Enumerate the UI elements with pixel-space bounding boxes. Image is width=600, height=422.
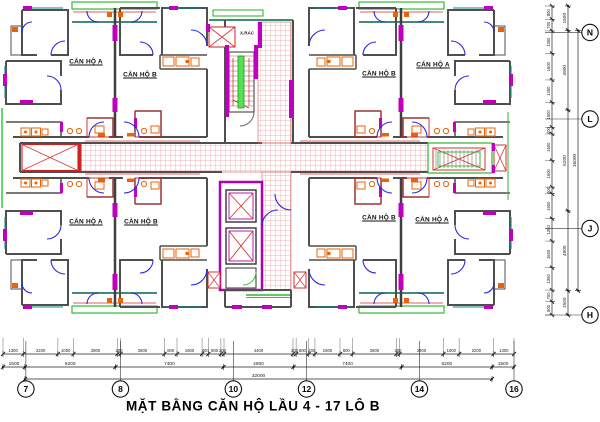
stair-rail <box>238 56 244 108</box>
dimension-value: 6200 <box>65 361 76 367</box>
grid-bubble-label: 10 <box>229 384 239 394</box>
dimension-value: 800 <box>343 348 351 353</box>
dimension-value: 1500 <box>562 13 568 24</box>
apartments-bottom-right <box>309 178 513 313</box>
dimension-value: 800 <box>167 348 175 353</box>
dimension-value: 800 <box>211 348 219 353</box>
dimension-value: 800 <box>546 304 551 312</box>
apartments-bottom-left <box>3 178 207 313</box>
dimension-value: 6200 <box>562 155 568 166</box>
lift-lobby-hatch <box>258 22 291 143</box>
dimension-value: 400 <box>546 186 551 194</box>
dimension-value: 1600 <box>546 142 551 152</box>
dimension-value: 1500 <box>546 109 551 119</box>
dimension-value: 1000 <box>447 348 457 353</box>
dimension-value: 4400 <box>254 348 264 353</box>
dimension-value: 4900 <box>562 245 568 256</box>
dimension-value: 800 <box>546 8 551 16</box>
dimension-value: 200 <box>291 348 299 353</box>
dimension-value: 800 <box>299 348 307 353</box>
dimension-value: 1500 <box>546 201 551 211</box>
dimension-value: 700 <box>546 292 551 300</box>
dimension-value: 400 <box>546 126 551 134</box>
dimension-value: 200 <box>115 348 123 353</box>
stair-right <box>428 112 508 200</box>
dimension-value: 1350 <box>546 37 551 47</box>
dimension-value: 16000 <box>572 154 578 168</box>
dimension-value: 2800 <box>91 348 101 353</box>
grid-bubble-label: H <box>587 310 593 320</box>
grid-bubble-label: 7 <box>24 384 29 394</box>
dimension-value: 1300 <box>9 348 19 353</box>
dimensions-right: 8007001350160013501500400160016004001500… <box>545 4 581 317</box>
dimension-value: 1500 <box>562 297 568 308</box>
dimension-value: 700 <box>546 21 551 29</box>
apartments-top-right <box>309 2 513 137</box>
grid-bubble-label: 14 <box>415 384 425 394</box>
dimension-value: 32000 <box>252 373 266 379</box>
dimension-value: 2800 <box>138 348 148 353</box>
grid-bubble-label: N <box>587 27 593 37</box>
dimension-value: 1600 <box>546 249 551 259</box>
dimension-value: 4900 <box>562 65 568 76</box>
dimension-value: 7400 <box>164 361 175 367</box>
floor-plan-svg: 1300220010002800200280080016004008002004… <box>0 0 600 422</box>
dimension-value: 2200 <box>472 348 482 353</box>
grid-bubble-label: 16 <box>509 384 519 394</box>
dimension-value: 7400 <box>342 361 353 367</box>
dimension-value: 1500 <box>9 361 20 367</box>
dimension-value: 1600 <box>185 348 195 353</box>
dimension-value: 400 <box>202 348 210 353</box>
dimension-value: 200 <box>395 348 403 353</box>
dimension-value: 2800 <box>370 348 380 353</box>
dimension-value: 1350 <box>546 86 551 96</box>
dimension-value: 1350 <box>546 274 551 284</box>
floor-plan-canvas: 1300220010002800200280080016004008002004… <box>0 0 600 422</box>
grid-bubble-label: L <box>587 114 592 124</box>
stair-core-top <box>206 10 293 143</box>
dimension-value: 1500 <box>498 361 509 367</box>
dimension-value: 1600 <box>323 348 333 353</box>
corridor <box>20 141 428 174</box>
dimension-value: 1300 <box>499 348 509 353</box>
dimension-value: 4800 <box>253 361 264 367</box>
dimension-value: 1600 <box>546 168 551 178</box>
dimension-value: 200 <box>219 348 227 353</box>
dimension-value: 6200 <box>442 361 453 367</box>
dimension-value: 2200 <box>36 348 46 353</box>
grid-bubble-label: 12 <box>302 384 312 394</box>
dimension-value: 400 <box>308 348 316 353</box>
grid-bubbles-right: NLJH <box>545 24 598 323</box>
elevator-core <box>208 172 306 309</box>
dimension-value: 1350 <box>546 225 551 235</box>
dimension-value: 1600 <box>546 61 551 71</box>
grid-bubble-label: 8 <box>118 384 123 394</box>
dimensions-bottom: 1300220010002800200280080016004008002004… <box>1 338 516 382</box>
grid-bubble-label: J <box>588 223 593 233</box>
apartments-top-left <box>3 2 207 137</box>
dimension-value: 2800 <box>417 348 427 353</box>
dimension-value: 1000 <box>61 348 71 353</box>
